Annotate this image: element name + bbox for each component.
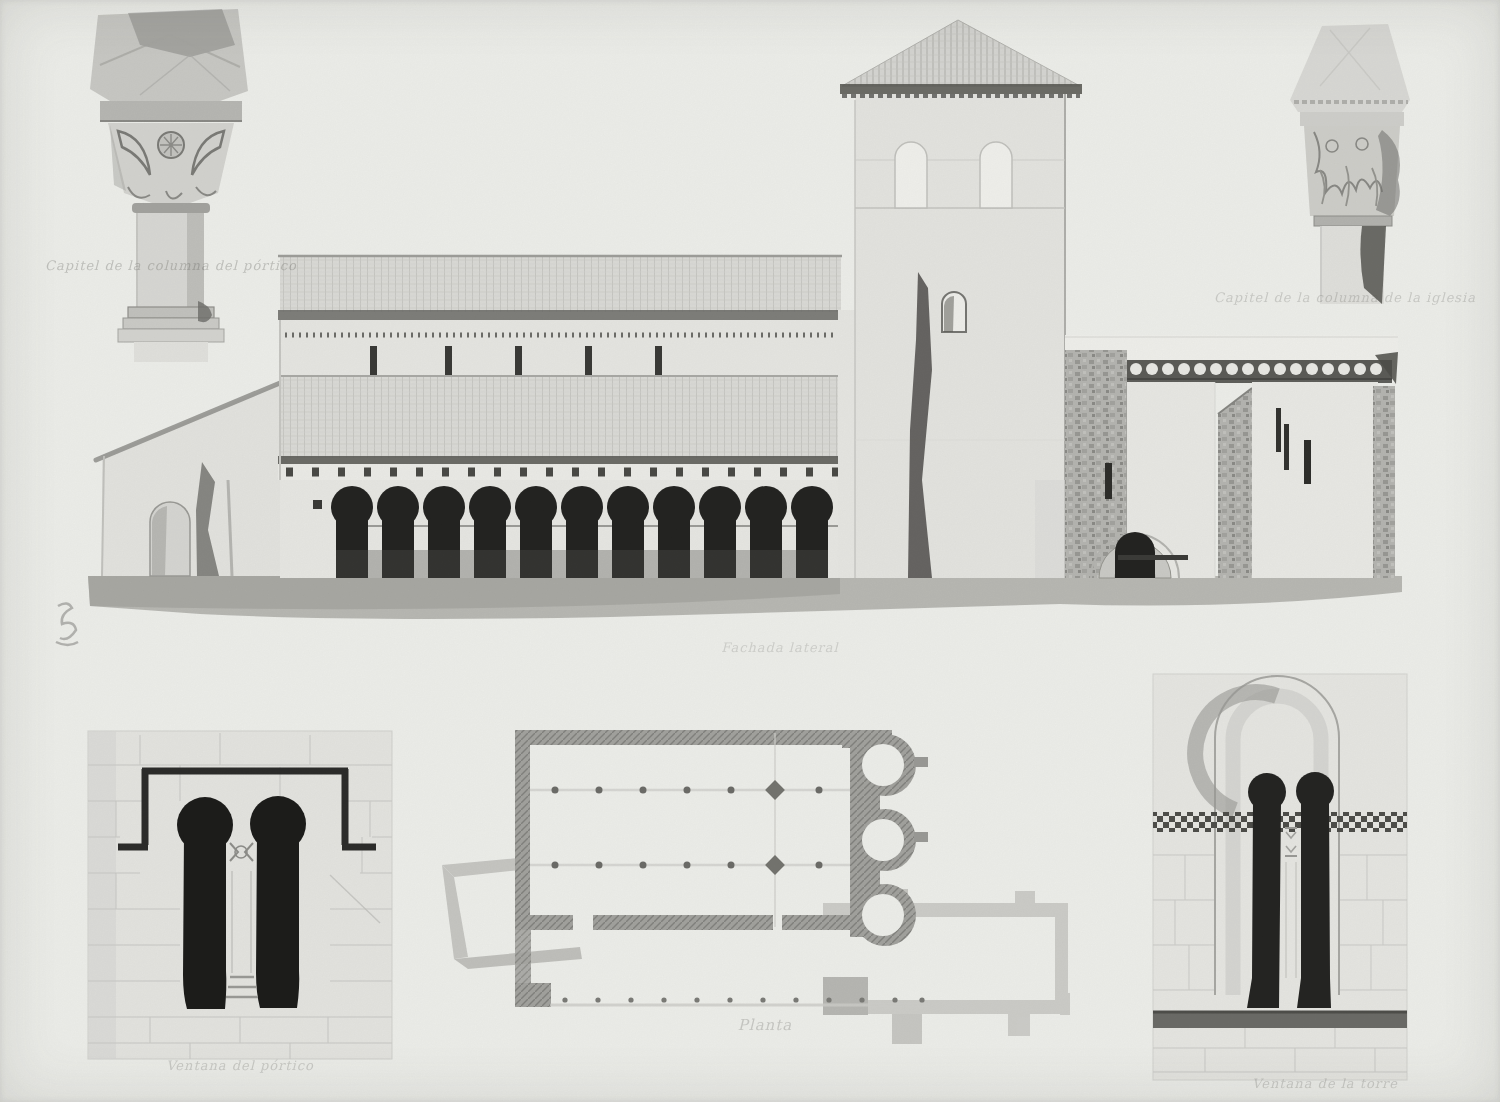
nave-elevation: [278, 256, 855, 578]
floor-plan-drawing: [430, 705, 1070, 1065]
church-elevation-drawing: [80, 10, 1410, 670]
bell-tower: [840, 20, 1082, 578]
west-annex: [96, 378, 292, 576]
plan-nave: [515, 730, 892, 930]
sill-band: [1153, 1012, 1407, 1028]
window-detail-left-drawing: [80, 725, 400, 1085]
plan-west-annex: [442, 858, 582, 969]
chancel-elevation: [1065, 335, 1398, 578]
margin-mark: [48, 598, 88, 654]
window-detail-right-drawing: [1145, 660, 1415, 1102]
architectural-plate: Capitel de la columna del pórtico Capite…: [0, 0, 1500, 1102]
